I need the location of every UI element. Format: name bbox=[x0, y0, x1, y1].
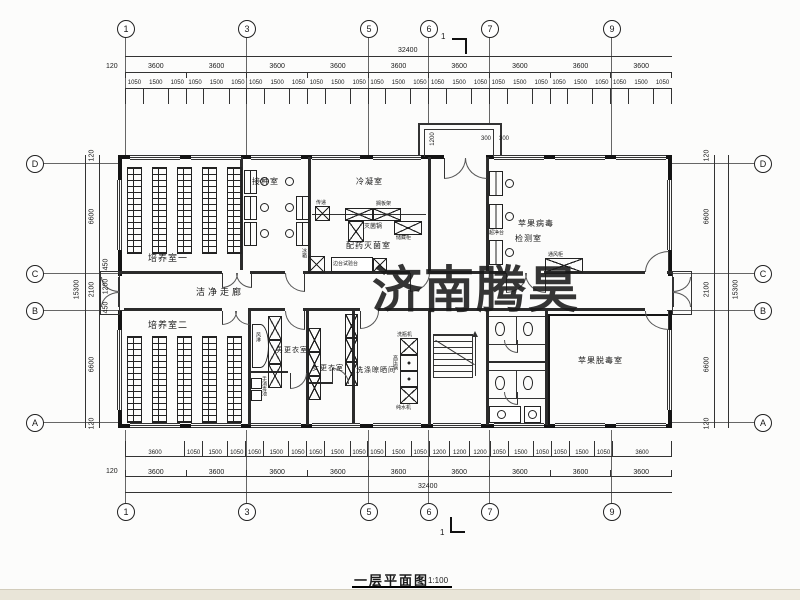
water-purifier-label: 纯水机 bbox=[396, 404, 411, 411]
dim-left-450-bottom: 450 bbox=[103, 290, 110, 326]
bench-unit bbox=[373, 208, 401, 221]
window bbox=[312, 155, 360, 160]
fridge-label: 冰箱 bbox=[301, 248, 308, 258]
work-bench bbox=[244, 196, 257, 220]
window bbox=[251, 423, 301, 428]
window bbox=[373, 423, 421, 428]
section-marker-bottom-icon bbox=[450, 517, 465, 533]
watermark-text: 济南腾昊 bbox=[372, 250, 580, 322]
stool bbox=[260, 229, 269, 238]
toilet-stall-wall bbox=[489, 370, 545, 371]
room-label-corridor: 洁净走廊 bbox=[196, 285, 244, 298]
window bbox=[616, 155, 666, 160]
door-arc-toilet-stall bbox=[504, 392, 518, 405]
culture-rack bbox=[177, 336, 192, 423]
window bbox=[373, 155, 421, 160]
culture-rack bbox=[202, 336, 217, 423]
dim-row-bottom-bays: 360036003600360036003600360036003600 bbox=[125, 470, 672, 477]
window bbox=[555, 423, 605, 428]
culture-rack bbox=[202, 167, 217, 254]
storage-cabinet-label: 储藏柜 bbox=[396, 234, 411, 241]
door-arc-men-change bbox=[290, 373, 307, 389]
stool bbox=[285, 203, 294, 212]
room-label-virus-test-line1: 苹果病毒 bbox=[518, 218, 554, 229]
grid-bubble-top-9: 9 bbox=[603, 20, 621, 38]
dim-entrance-depth: 1200 bbox=[430, 121, 436, 157]
grid-line bbox=[43, 163, 118, 164]
window bbox=[555, 155, 605, 160]
dim-row-bottom-detail: 3600105015001050105015001050105015001050… bbox=[125, 441, 672, 457]
dim-right-120-top: 120 bbox=[704, 138, 711, 174]
dim-top-edge: 120 bbox=[106, 63, 118, 70]
grid-bubble-bottom-3: 3 bbox=[238, 503, 256, 521]
culture-rack bbox=[152, 336, 167, 423]
room-label-virus-test-line2: 检测室 bbox=[515, 233, 542, 244]
clean-bench-unit bbox=[489, 171, 503, 196]
window bbox=[117, 330, 122, 410]
room-label-condense: 冷凝室 bbox=[356, 176, 383, 187]
grid-bubble-right-C: C bbox=[754, 265, 772, 283]
window bbox=[667, 180, 672, 250]
window bbox=[191, 155, 241, 160]
culture-rack bbox=[177, 167, 192, 254]
locker bbox=[345, 338, 358, 362]
grid-bubble-bottom-9: 9 bbox=[603, 503, 621, 521]
window bbox=[251, 155, 301, 160]
stairs-arrow-line bbox=[475, 337, 476, 376]
grid-bubble-left-A: A bbox=[26, 414, 44, 432]
grid-line bbox=[672, 422, 754, 423]
detox-room-outline bbox=[548, 314, 671, 427]
dim-left-2100: 2100 bbox=[89, 272, 96, 308]
locker bbox=[268, 364, 282, 388]
door-arc-culture2 bbox=[235, 311, 250, 325]
storage-cabinet bbox=[394, 221, 422, 235]
clean-bench-label: 超净台 bbox=[489, 229, 504, 236]
grid-bubble-left-D: D bbox=[26, 155, 44, 173]
pass-box-label: 传递 bbox=[316, 199, 326, 206]
sink-basin bbox=[497, 410, 506, 419]
section-marker-bottom-label: 1 bbox=[440, 528, 444, 537]
dim-line-left-overall bbox=[85, 155, 86, 428]
culture-rack bbox=[127, 167, 142, 254]
door-arc-inoculation bbox=[285, 273, 305, 292]
toilet-fixture bbox=[523, 376, 533, 390]
window bbox=[494, 155, 544, 160]
stool bbox=[285, 229, 294, 238]
dim-right-2100: 2100 bbox=[704, 272, 711, 308]
bottle-washer bbox=[400, 338, 418, 355]
bottom-strip bbox=[0, 589, 800, 600]
room-label-detox: 苹果脱毒室 bbox=[578, 355, 623, 366]
autoclave-unit bbox=[400, 371, 418, 387]
floor-plan: 1 3 5 6 7 9 1 3 5 6 7 9 D C B A D C B A … bbox=[0, 0, 800, 600]
culture-rack bbox=[227, 336, 242, 423]
fridge bbox=[308, 256, 325, 273]
window bbox=[494, 423, 544, 428]
dim-line-right-overall bbox=[728, 155, 729, 428]
drawing-scale: 1:100 bbox=[428, 576, 448, 585]
room-label-washing: 洗涤晾晒间 bbox=[356, 365, 396, 375]
wall-stairhall-left bbox=[428, 311, 431, 425]
bench-unit bbox=[345, 208, 373, 221]
grid-bubble-bottom-6: 6 bbox=[420, 503, 438, 521]
stool bbox=[285, 177, 294, 186]
dim-line-bottom-overall bbox=[125, 492, 672, 493]
air-shower bbox=[252, 324, 269, 368]
hand-wash-label: 手消毒池 bbox=[261, 376, 268, 396]
door-arc-toilet-stall bbox=[504, 340, 518, 353]
drawing-title: 一层平面图 bbox=[354, 570, 429, 589]
sterilizer-pot bbox=[348, 221, 364, 242]
culture-rack bbox=[152, 167, 167, 254]
locker bbox=[345, 314, 358, 338]
work-bench bbox=[296, 196, 309, 220]
locker bbox=[308, 376, 321, 400]
grid-bubble-bottom-7: 7 bbox=[481, 503, 499, 521]
dim-left-120-top: 120 bbox=[89, 138, 96, 174]
dim-right-overall: 15300 bbox=[733, 272, 740, 308]
dim-left-overall: 15300 bbox=[74, 272, 81, 308]
dim-right-6600-top: 6600 bbox=[704, 199, 711, 235]
room-label-culture2: 培养室二 bbox=[148, 318, 188, 331]
locker bbox=[308, 328, 321, 352]
dim-entrance-300-right: 300 bbox=[499, 136, 509, 142]
grid-bubble-top-1: 1 bbox=[117, 20, 135, 38]
window bbox=[312, 423, 360, 428]
bottle-washer-label: 洗瓶机 bbox=[397, 331, 412, 338]
grid-bubble-bottom-1: 1 bbox=[117, 503, 135, 521]
stairs bbox=[433, 334, 473, 378]
window bbox=[130, 155, 180, 160]
dim-row-top-bays: 360036003600360036003600360036003600 bbox=[125, 72, 672, 78]
culture-rack bbox=[127, 336, 142, 423]
window bbox=[433, 423, 481, 428]
culture-rack bbox=[227, 167, 242, 254]
wall-toilet-partition bbox=[486, 361, 545, 363]
water-purifier bbox=[400, 387, 418, 404]
grid-bubble-top-7: 7 bbox=[481, 20, 499, 38]
shelf-label: 搁板架 bbox=[376, 200, 391, 207]
grid-line bbox=[672, 163, 754, 164]
work-bench bbox=[244, 222, 257, 246]
window bbox=[616, 423, 666, 428]
dim-entrance-300-left: 300 bbox=[481, 136, 491, 142]
grid-bubble-left-B: B bbox=[26, 302, 44, 320]
toilet-fixture bbox=[523, 322, 533, 336]
window bbox=[191, 423, 241, 428]
stool bbox=[505, 179, 514, 188]
door-arc-virus-test bbox=[645, 251, 669, 272]
grid-bubble-right-D: D bbox=[754, 155, 772, 173]
stool bbox=[505, 212, 514, 221]
dim-right-6600-bottom: 6600 bbox=[704, 347, 711, 383]
autoclave-unit bbox=[400, 355, 418, 371]
section-marker-top-icon bbox=[452, 38, 467, 54]
dim-right-120-bottom: 120 bbox=[704, 406, 711, 442]
entrance-door-arc bbox=[465, 158, 487, 179]
stool bbox=[260, 203, 269, 212]
air-shower-label: 风淋 bbox=[255, 332, 262, 342]
grid-bubble-top-3: 3 bbox=[238, 20, 256, 38]
sterilizer-label: 灭菌锅 bbox=[364, 221, 382, 230]
dim-bottom-overall: 32400 bbox=[418, 483, 437, 490]
grid-line bbox=[489, 37, 490, 125]
room-label-men-change: 男更衣室 bbox=[276, 345, 308, 355]
stairs-arrow-head bbox=[472, 331, 478, 337]
entrance-door-arc bbox=[444, 158, 466, 179]
dim-left-120-bottom: 120 bbox=[89, 406, 96, 442]
dim-line-right-chain bbox=[714, 155, 715, 428]
clean-bench-unit bbox=[489, 204, 503, 229]
window bbox=[117, 180, 122, 250]
toilet-fixture bbox=[495, 322, 505, 336]
dim-row-top-detail: 1050150010501050150010501050150010501050… bbox=[125, 88, 672, 104]
dim-line-top-overall bbox=[125, 56, 672, 57]
work-bench bbox=[296, 222, 309, 246]
grid-bubble-right-B: B bbox=[754, 302, 772, 320]
grid-line bbox=[43, 422, 118, 423]
pass-box bbox=[315, 206, 330, 221]
side-bench-label: 边台试验台 bbox=[333, 260, 358, 267]
grid-bubble-top-5: 5 bbox=[360, 20, 378, 38]
bottom-strip-right bbox=[700, 590, 800, 600]
grid-bubble-left-C: C bbox=[26, 265, 44, 283]
section-marker-top-label: 1 bbox=[441, 32, 445, 41]
dim-top-overall: 32400 bbox=[398, 47, 417, 54]
toilet-fixture bbox=[495, 376, 505, 390]
window bbox=[667, 330, 672, 410]
locker bbox=[268, 316, 282, 340]
grid-bubble-bottom-5: 5 bbox=[360, 503, 378, 521]
dim-left-6600-bottom: 6600 bbox=[89, 347, 96, 383]
dim-left-6600-top: 6600 bbox=[89, 199, 96, 235]
grid-bubble-right-A: A bbox=[754, 414, 772, 432]
window bbox=[130, 423, 180, 428]
wall-culture2-right bbox=[248, 311, 251, 425]
mop-sink-basin bbox=[528, 410, 537, 419]
room-label-inoculation: 接种室 bbox=[252, 176, 279, 187]
door-arc-changing bbox=[285, 311, 305, 330]
room-label-women-change: 女更衣室 bbox=[312, 363, 344, 373]
room-label-culture1: 培养室一 bbox=[148, 251, 188, 264]
grid-bubble-top-6: 6 bbox=[420, 20, 438, 38]
grid-line bbox=[428, 37, 429, 125]
dim-bottom-edge: 120 bbox=[106, 468, 118, 475]
